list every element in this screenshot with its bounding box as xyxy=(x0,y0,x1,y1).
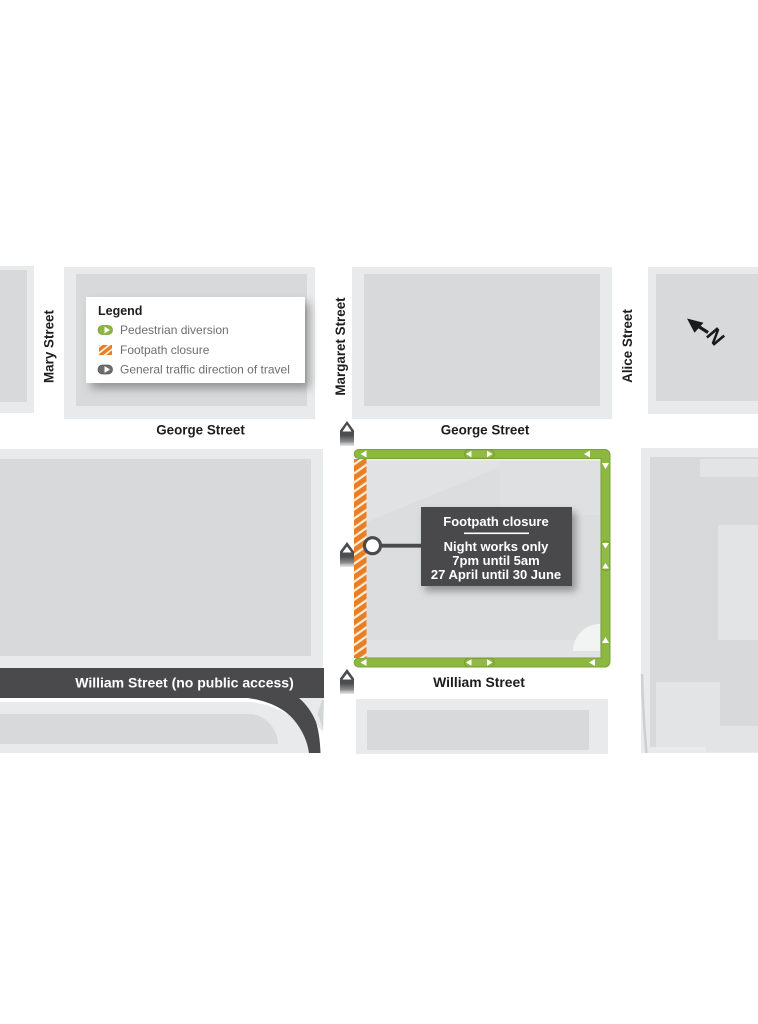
svg-text:Legend: Legend xyxy=(98,304,142,318)
svg-text:George Street: George Street xyxy=(441,423,530,438)
svg-text:27 April until 30 June: 27 April until 30 June xyxy=(431,567,561,582)
svg-text:Margaret Street: Margaret Street xyxy=(333,297,348,396)
svg-text:Night works only: Night works only xyxy=(444,539,550,554)
svg-text:Footpath closure: Footpath closure xyxy=(120,343,210,357)
svg-text:William Street: William Street xyxy=(433,674,525,690)
svg-text:Footpath closure: Footpath closure xyxy=(443,514,548,529)
svg-text:Pedestrian diversion: Pedestrian diversion xyxy=(120,323,229,337)
svg-text:William Street (no public acce: William Street (no public access) xyxy=(75,675,294,691)
svg-text:Mary Street: Mary Street xyxy=(42,309,57,382)
svg-text:George Street: George Street xyxy=(156,423,245,438)
svg-text:Alice Street: Alice Street xyxy=(620,309,635,383)
svg-text:General traffic direction of t: General traffic direction of travel xyxy=(120,363,290,377)
svg-text:7pm until 5am: 7pm until 5am xyxy=(452,553,539,568)
